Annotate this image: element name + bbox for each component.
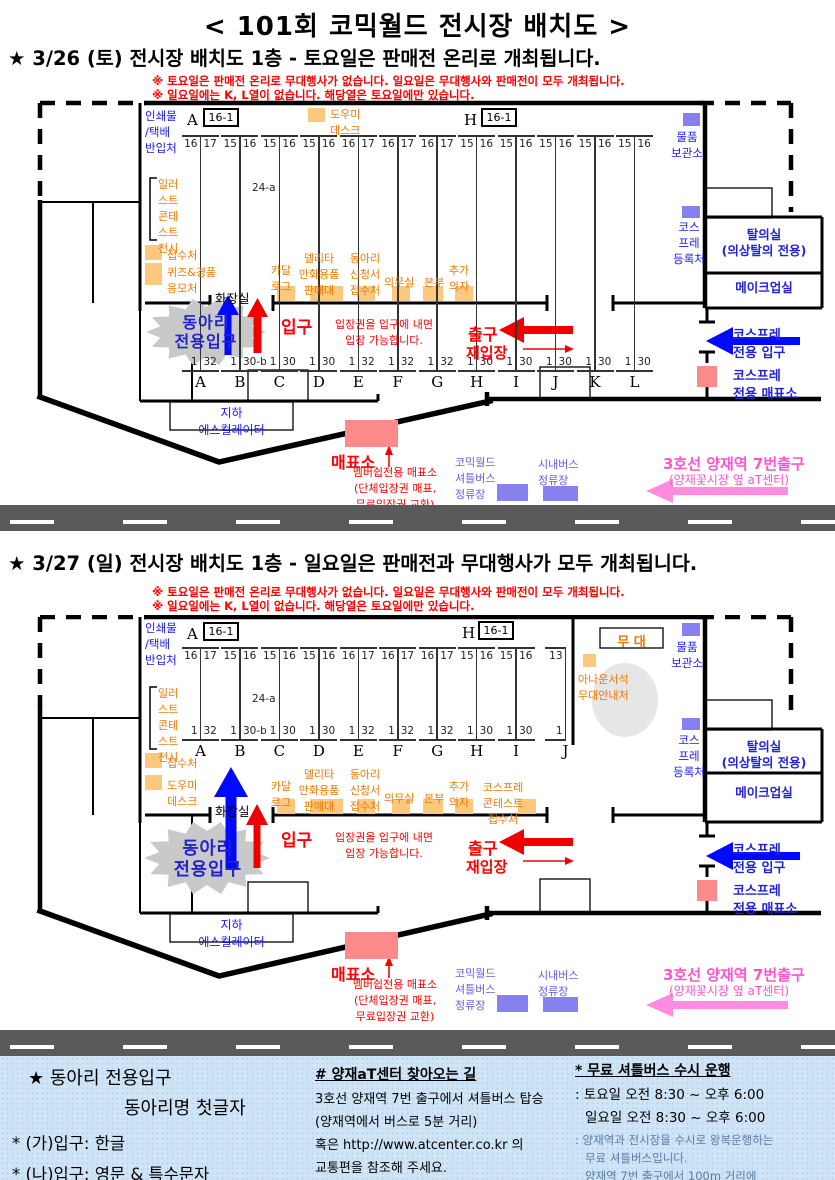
booth-bl-I: 1 [495, 725, 513, 737]
reentry-arrowhead-icon [565, 345, 574, 353]
booth-bl-B: 1 [219, 356, 237, 368]
label-city_bus_stop: 시내버스 정류장 [538, 967, 578, 999]
saturday-map: 1617132A1516130-b24-aB1516130C1516130D16… [0, 100, 835, 505]
booth-letter-G: G [426, 373, 448, 391]
booth-tl-A: 16 [180, 650, 198, 662]
booth-line [300, 647, 337, 649]
booth-letter-E: E [347, 742, 369, 760]
booth-line [616, 370, 653, 372]
marker-or-sq [145, 775, 162, 790]
label-reentry: 재입장 [466, 856, 507, 877]
small-room [705, 700, 772, 730]
booth-line [379, 370, 416, 372]
label-dressing_room: 탈의실 (의상탈의 전용) [707, 739, 821, 772]
booth-line [340, 739, 377, 741]
booth-line [436, 648, 438, 740]
label-makeup_room: 메이크업실 [707, 785, 821, 801]
label-cosplay_contest_desk: 코스프레 콘테스트 접수처 [479, 779, 527, 827]
road [0, 505, 835, 531]
booth-tl-J: 13 [545, 650, 563, 662]
booth-line [498, 370, 535, 372]
label-cosplay_entrance: 코스프레 전용 입구 [733, 327, 825, 362]
booth-line [537, 135, 574, 137]
label-subway_exit_sub: (양재꽃시장 옆 aT센터) [669, 982, 789, 999]
label-shuttle_stop: 코믹월드 셔틀버스 정류장 [455, 454, 495, 502]
label-extra_chairs: 추가 의자 [445, 262, 473, 294]
booth-letter-H: H [466, 373, 488, 391]
label-makeup_room: 메이크업실 [707, 280, 821, 296]
booth-line [300, 370, 337, 372]
shuttle-hours: : 토요일 오전 8:30 ~ 오후 6:00 [575, 1083, 831, 1103]
label-medical: 의무실 [384, 274, 414, 290]
label-quiz_draw: 퀴즈&경품 응모처 [167, 264, 216, 296]
booth-tl-I: 15 [495, 650, 513, 662]
booth-tl-D: 15 [298, 138, 316, 150]
booth-bl-F: 1 [377, 356, 395, 368]
booth-letter-L: L [623, 373, 645, 391]
label-cosplay_ticket_office: 코스프레 전용 매표소 [733, 368, 825, 403]
label-toilet: 화장실 [215, 288, 250, 307]
booth-bl-E: 1 [337, 725, 355, 737]
label-illust_contest: 일러 스트 콘테 스트 전시 [158, 685, 178, 765]
inner-wall [40, 202, 140, 303]
booth-line [419, 739, 456, 741]
booth-line [555, 136, 557, 371]
sunday-note-2: ※ 일요일에는 K, L열이 없습니다. 해당열은 토요일에만 있습니다. [152, 598, 474, 614]
structure-box [540, 879, 590, 912]
exit-arrow-icon [499, 317, 573, 343]
label-storage: 물품 보관소 [666, 129, 708, 161]
label-extra_chairs: 추가 의자 [445, 778, 473, 810]
shuttle-desc: : 양재역과 전시장을 수시로 왕복운행하는 [575, 1132, 831, 1148]
exit-arrow-icon [499, 829, 573, 855]
label-cosplay_ticket_office: 코스프레 전용 매표소 [733, 883, 825, 918]
booth-letter-D: D [308, 742, 330, 760]
booth-line [182, 647, 219, 649]
label-corner_box: 16-1 [481, 108, 517, 127]
booth-bl-F: 1 [377, 725, 395, 737]
marker-pk-sq [345, 932, 398, 959]
booth-tl-K: 15 [574, 138, 592, 150]
label-underground_escalator: 지하 에스컬레이터 [172, 916, 291, 950]
label-corner_box: 16-1 [478, 621, 514, 640]
booth-bl-H: 1 [456, 725, 474, 737]
booth-tl-H: 15 [456, 650, 474, 662]
booth-line [261, 647, 298, 649]
booth-line [279, 648, 281, 740]
booth-tr-I: 16 [519, 650, 541, 662]
label-entrance_note: 입장권을 입구에 내면 입장 가능합니다. [318, 829, 450, 861]
booth-bl-C: 1 [258, 725, 276, 737]
label-printing: 인쇄물 /택배 반입처 [145, 620, 177, 668]
label-stage: 무 대 [600, 631, 663, 650]
booth-letter-G: G [426, 742, 448, 760]
booth-line [261, 739, 298, 741]
booth-bl-E: 1 [337, 356, 355, 368]
sunday-heading: ★ 3/27 (일) 전시장 배치도 1층 - 일요일은 판매전과 무대행사가 … [8, 547, 697, 576]
booth-letter-F: F [387, 742, 409, 760]
label-catalog: 카달 로그 [266, 778, 296, 810]
booth-line [577, 135, 614, 137]
booth-line [261, 370, 298, 372]
booth-line [379, 647, 416, 649]
shuttle-title: * 무료 셔틀버스 수시 운행 [575, 1060, 831, 1080]
booth-line [458, 370, 495, 372]
label-club_entrance: 동아리 전용입구 [146, 314, 266, 352]
booth-line [261, 135, 298, 137]
illust-bracket [150, 687, 157, 749]
label-a: A [187, 625, 198, 643]
label-entrance_note: 입장권을 입구에 내면 입장 가능합니다. [318, 316, 450, 348]
booth-tl-G: 16 [416, 650, 434, 662]
booth-line [458, 739, 495, 741]
booth-tl-H: 15 [456, 138, 474, 150]
label-toilet: 화장실 [215, 801, 250, 820]
label-cosplay_reg: 코스 프레 등록처 [668, 732, 710, 780]
label-club_form_desk: 동아리 신청서 접수처 [344, 250, 386, 298]
booth-line [182, 135, 219, 137]
footer-panel: ★ 동아리 전용입구 동아리명 첫글자 * (가)입구: 한글 * (나)입구:… [0, 1056, 835, 1180]
booth-bl-J: 1 [545, 725, 563, 737]
booth-line [577, 370, 614, 372]
label-corner_box: 16-1 [203, 622, 239, 641]
inner-wall [40, 718, 140, 815]
booth-line [594, 136, 596, 371]
booth-line [498, 739, 535, 741]
structure-box [248, 882, 308, 913]
booth-line [221, 739, 258, 741]
booth-letter-B: B [229, 742, 251, 760]
booth-letter-A: A [190, 373, 212, 391]
page: < 101회 코믹월드 전시장 배치도 > ★ 3/26 (토) 전시장 배치도… [0, 0, 835, 1180]
booth-letter-B: B [229, 373, 251, 391]
booth-line [458, 647, 495, 649]
lower-wall [140, 394, 378, 401]
booth-tl-E: 16 [337, 650, 355, 662]
booth-line [200, 648, 202, 740]
booth-tl-A: 16 [180, 138, 198, 150]
label-illust_contest: 일러 스트 콘테 스트 전시 [158, 176, 178, 256]
booth-line [379, 135, 416, 137]
booth-line [182, 370, 219, 372]
booth-br-L: 30 [637, 356, 665, 368]
label-medical: 의무실 [384, 790, 414, 806]
booth-letter-C: C [268, 373, 290, 391]
booth-tl-J: 15 [535, 138, 553, 150]
directions-line: 혹은 http://www.atcenter.co.kr 의 [315, 1134, 577, 1153]
booth-letter-J: J [545, 373, 567, 391]
booth-br-I: 30 [519, 725, 547, 737]
label-entrance: 입구 [281, 313, 312, 338]
small-room [705, 188, 772, 218]
directions-line: 교통편을 참조해 주세요. [315, 1157, 577, 1176]
marker-vi-sq [543, 486, 578, 501]
label-a: A [187, 111, 198, 129]
booth-tl-D: 15 [298, 650, 316, 662]
road [0, 1030, 835, 1056]
booth-line [318, 648, 320, 740]
label-corner_box: 16-1 [203, 108, 239, 127]
reentry-arrowhead-icon [565, 857, 574, 865]
booth-letter-J: J [555, 742, 577, 760]
club-entrance-na: * (나)입구: 영문 & 특수문자 [12, 1161, 307, 1180]
marker-vi-sq [497, 995, 528, 1012]
booth-bl-G: 1 [416, 725, 434, 737]
booth-bl-G: 1 [416, 356, 434, 368]
booth-tl-L: 15 [613, 138, 631, 150]
booth-bl-D: 1 [298, 356, 316, 368]
label-catalog: 카달 로그 [266, 262, 296, 294]
footer-club-entrance-info: ★ 동아리 전용입구 동아리명 첫글자 * (가)입구: 한글 * (나)입구:… [12, 1060, 307, 1180]
booth-bl-C: 1 [258, 356, 276, 368]
booth-tl-C: 15 [258, 138, 276, 150]
booth-letter-I: I [505, 742, 527, 760]
booth-tl-G: 16 [416, 138, 434, 150]
booth-mid-B: 24-a [252, 182, 276, 194]
saturday-heading: ★ 3/26 (토) 전시장 배치도 1층 - 토요일은 판매전 온리로 개최됩… [8, 42, 601, 71]
booth-line [279, 136, 281, 371]
booth-line [340, 647, 377, 649]
label-city_bus_stop: 시내버스 정류장 [538, 456, 578, 488]
booth-tl-F: 16 [377, 650, 395, 662]
club-entrance-ga: * (가)입구: 한글 [12, 1130, 307, 1154]
label-hq: 본부 [424, 274, 444, 290]
booth-line [419, 370, 456, 372]
marker-vi-sq [683, 113, 700, 126]
label-cosplay_reg: 코스 프레 등록처 [668, 219, 710, 267]
label-subway_exit_sub: (양재꽃시장 옆 aT센터) [669, 471, 789, 488]
booth-letter-C: C [268, 742, 290, 760]
shuttle-hours: 일요일 오전 8:30 ~ 오후 6:00 [585, 1106, 831, 1126]
marker-vi-sq [682, 718, 700, 730]
booth-line [476, 648, 478, 740]
booth-line [616, 135, 653, 137]
sunday-map: 1617132A1516130-b24-aB1516130C1516130D16… [0, 615, 835, 1030]
booth-bl-K: 1 [574, 356, 592, 368]
booth-line [221, 647, 258, 649]
label-reception: 접수처 [167, 755, 197, 771]
marker-vi-sq [543, 997, 578, 1012]
marker-vi-sq [497, 484, 528, 501]
booth-line [498, 135, 535, 137]
booth-bl-D: 1 [298, 725, 316, 737]
booth-tl-F: 16 [377, 138, 395, 150]
booth-line [565, 648, 567, 740]
booth-letter-F: F [387, 373, 409, 391]
booth-tl-I: 15 [495, 138, 513, 150]
club-entrance-subtitle: 동아리명 첫글자 [124, 1094, 307, 1120]
label-cosplay_entrance: 코스프레 전용 입구 [733, 842, 825, 877]
booth-line [300, 739, 337, 741]
booth-line [397, 648, 399, 740]
label-hq: 본부 [424, 790, 444, 806]
booth-letter-H: H [466, 742, 488, 760]
booth-line [537, 370, 574, 372]
label-underground_escalator: 지하 에스컬레이터 [172, 404, 291, 438]
booth-line [419, 647, 456, 649]
booth-tl-C: 15 [258, 650, 276, 662]
label-printing: 인쇄물 /택배 반입처 [145, 108, 177, 156]
footer-shuttle-info: * 무료 셔틀버스 수시 운행 : 토요일 오전 8:30 ~ 오후 6:00 … [575, 1060, 831, 1180]
shuttle-desc: 양재역 7번 출구에서 100m 거리에 [585, 1168, 831, 1180]
marker-pk-sq [697, 880, 717, 901]
booth-line [515, 648, 517, 740]
marker-or-sq [308, 108, 325, 122]
booth-line [239, 648, 241, 740]
booth-mid-B: 24-a [252, 693, 276, 705]
booth-tl-B: 15 [219, 138, 237, 150]
road-lane-marks [10, 1045, 835, 1049]
booth-line [634, 136, 636, 371]
lower-wall [140, 906, 378, 913]
booth-bl-L: 1 [613, 356, 631, 368]
booth-tr-L: 16 [637, 138, 659, 150]
booth-bl-A: 1 [180, 356, 198, 368]
shuttle-desc: 무료 셔틀버스입니다. [585, 1150, 831, 1166]
marker-vi-sq [682, 206, 700, 218]
booth-line [545, 739, 566, 741]
booth-letter-D: D [308, 373, 330, 391]
marker-pk-sq [345, 420, 398, 447]
booth-line [419, 135, 456, 137]
label-announcer_desk: 아나운서석 무대안내처 [578, 671, 629, 703]
booth-line [358, 648, 360, 740]
label-reentry: 재입장 [466, 342, 507, 363]
club-entrance-title: ★ 동아리 전용입구 [28, 1064, 307, 1090]
label-helper_desk: 도우미 데스크 [167, 777, 197, 809]
booth-line [379, 739, 416, 741]
label-delita_goods: 델리타 만화용품 판매대 [296, 250, 342, 298]
label-storage: 물품 보관소 [666, 639, 708, 671]
label-shuttle_stop: 코믹월드 셔틀버스 정류장 [455, 965, 495, 1013]
label-helper_desk: 도우미 데스크 [330, 106, 360, 138]
marker-or-sq [583, 654, 596, 667]
page-title: < 101회 코믹월드 전시장 배치도 > [0, 6, 835, 43]
booth-letter-I: I [505, 373, 527, 391]
booth-bl-B: 1 [219, 725, 237, 737]
marker-pk-sq [697, 366, 717, 387]
booth-letter-E: E [347, 373, 369, 391]
saturday-floorplan [0, 100, 835, 505]
label-club_form_desk: 동아리 신청서 접수처 [344, 766, 386, 814]
booth-line [340, 370, 377, 372]
booth-line [221, 370, 258, 372]
directions-line: (양재역에서 버스로 5분 거리) [315, 1111, 577, 1130]
illust-bracket [150, 178, 157, 240]
directions-line: 3호선 양재역 7번 출구에서 셔틀버스 탑승 [315, 1088, 577, 1107]
label-h: H [462, 624, 475, 642]
label-delita_goods: 델리타 만화용품 판매대 [296, 766, 342, 814]
footer-directions: # 양재aT센터 찾아오는 길 3호선 양재역 7번 출구에서 셔틀버스 탑승 … [315, 1064, 577, 1180]
booth-tl-B: 15 [219, 650, 237, 662]
booth-line [458, 135, 495, 137]
booth-line [182, 739, 219, 741]
label-dressing_room: 탈의실 (의상탈의 전용) [707, 227, 821, 260]
booth-line [515, 136, 517, 371]
booth-line [545, 647, 566, 649]
marker-vi-sq [682, 623, 700, 636]
booth-bl-A: 1 [180, 725, 198, 737]
directions-title: # 양재aT센터 찾아오는 길 [315, 1064, 577, 1084]
booth-tl-E: 16 [337, 138, 355, 150]
booth-bl-J: 1 [535, 356, 553, 368]
label-ticket_office_note: 멤버쉽전용 매표소 (단체입장권 매표, 무료입장권 교환) [341, 976, 449, 1024]
booth-line [221, 135, 258, 137]
label-entrance: 입구 [281, 826, 312, 851]
label-h: H [464, 111, 477, 129]
booth-line [498, 647, 535, 649]
label-club_entrance: 동아리 전용입구 [146, 839, 270, 880]
label-reception: 접수처 [167, 247, 197, 263]
marker-or-sq [145, 263, 162, 285]
booth-letter-K: K [584, 373, 606, 391]
road-lane-marks [10, 520, 835, 524]
